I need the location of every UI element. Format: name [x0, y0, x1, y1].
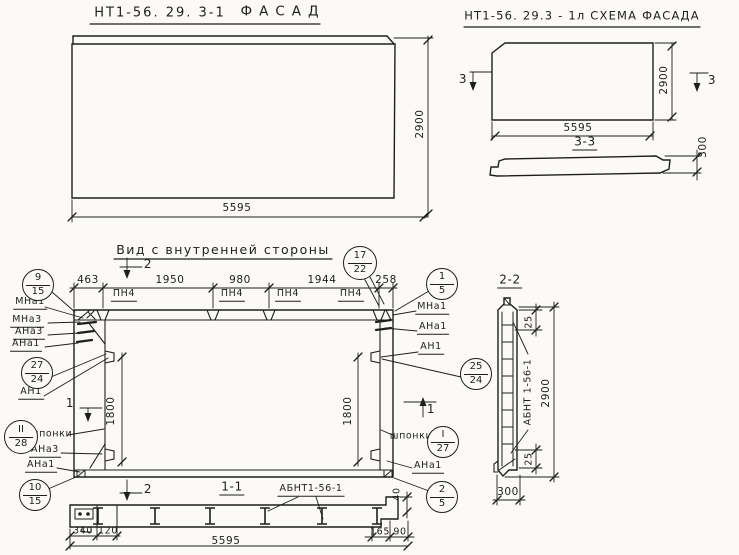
callout-top: 27 [31, 361, 44, 371]
callout-bottom: 28 [15, 439, 28, 449]
label-ana1-right-bottom: АНа1 [412, 461, 444, 474]
callout-top: I [442, 430, 445, 440]
section-mark-3-left: 3 [459, 73, 467, 85]
section11-dim-40: 40 [392, 487, 402, 500]
section-2-2-title: 2-2 [497, 274, 522, 289]
section-mark-3-right: 3 [708, 74, 716, 86]
callout-10-15: 10 15 [19, 479, 51, 511]
section-mark-2-bottom: 2 [144, 483, 152, 495]
section22-dim-25-top: 25 [524, 315, 534, 328]
callout-bottom: 5 [439, 499, 445, 509]
label-shponki-right: шпонки [390, 431, 432, 441]
callout-top: 1 [439, 272, 445, 282]
callout-top: 17 [354, 251, 367, 261]
section22-dim-2900: 2900 [541, 378, 552, 407]
callout-bottom: 24 [470, 376, 483, 386]
section-1-1-title: 1-1 [219, 481, 244, 496]
label-pn4-1: ПН4 [111, 289, 137, 302]
section11-dim-165: 165 [370, 527, 390, 537]
interior-title: Вид с внутренней стороны [116, 244, 330, 257]
callout-bottom: 27 [437, 444, 450, 454]
callout-bottom: 22 [354, 265, 367, 275]
section22-dim-25-bottom: 25 [524, 452, 534, 465]
callout-top: 9 [35, 273, 41, 283]
callout-2-5: 2 5 [426, 481, 458, 513]
callout-top: 10 [29, 483, 42, 493]
interior-dim-1800-left: 1800 [106, 396, 117, 425]
label-ana1-right: АНа1 [417, 322, 449, 335]
interior-dim-258: 258 [375, 275, 397, 286]
interior-dim-980: 980 [229, 275, 251, 286]
label-pn4-4: ПН4 [338, 289, 364, 302]
section-mark-2-top: 2 [144, 258, 152, 270]
section11-dim-5595: 5595 [211, 536, 240, 547]
callout-bottom: 5 [439, 286, 445, 296]
scheme-dim-height: 2900 [659, 65, 670, 94]
callout-top: 2 [439, 485, 445, 495]
callout-top: II [18, 425, 24, 435]
scheme-dim-thickness: 300 [698, 136, 709, 158]
label-an1-right: АН1 [418, 342, 444, 355]
callout-bottom: 15 [29, 497, 42, 507]
callout-bottom: 15 [32, 287, 45, 297]
facade-title: ФАСАД [240, 5, 325, 19]
facade-title-code: НТ1-56. 29. 3-1 [94, 7, 226, 20]
section11-dim-340: 340 [73, 526, 93, 536]
callout-27-24: 27 24 [21, 357, 53, 389]
label-ana1-left-bottom: АНа1 [25, 460, 57, 473]
interior-dim-463: 463 [77, 275, 99, 286]
section-mark-1-left: 1 [66, 397, 74, 409]
label-abnt-1-56-1: АБНТ1-56-1 [278, 484, 345, 497]
callout-17-22: 17 22 [343, 246, 377, 280]
scheme-title: НТ1-56. 29.3 - 1л СХЕМА ФАСАДА [464, 10, 700, 22]
label-pn4-2: ПН4 [219, 289, 245, 302]
interior-dim-1950: 1950 [155, 275, 184, 286]
drawing-linework [0, 0, 739, 555]
callout-25-24: 25 24 [460, 358, 492, 390]
interior-dim-1800-right: 1800 [343, 396, 354, 425]
callout-II-28: II 28 [4, 420, 38, 454]
section11-dim-120: 120 [98, 526, 118, 536]
callout-I-27: I 27 [427, 426, 459, 458]
section-3-3-title: 3-3 [572, 136, 597, 151]
facade-dim-height: 2900 [415, 109, 426, 138]
label-ana1-left: АНа1 [10, 339, 42, 352]
label-abnt-1-56-1-vertical: АБНТ 1-56-1 [523, 359, 533, 426]
callout-1-5: 1 5 [426, 268, 458, 300]
label-mna1-right: МНа1 [415, 302, 449, 315]
callout-bottom: 24 [31, 375, 44, 385]
scheme-dim-width: 5595 [563, 123, 592, 134]
section22-dim-300: 300 [497, 487, 519, 498]
section-mark-1-right: 1 [427, 403, 435, 415]
facade-dim-width: 5595 [222, 203, 251, 214]
section11-dim-90: 90 [393, 527, 406, 537]
callout-top: 25 [470, 362, 483, 372]
label-pn4-3: ПН4 [275, 289, 301, 302]
callout-9-15: 9 15 [22, 269, 54, 301]
interior-dim-1944: 1944 [307, 275, 336, 286]
drawing-sheet: НТ1-56. 29. 3-1 ФАСАД НТ1-56. 29.3 - 1л … [0, 0, 739, 555]
